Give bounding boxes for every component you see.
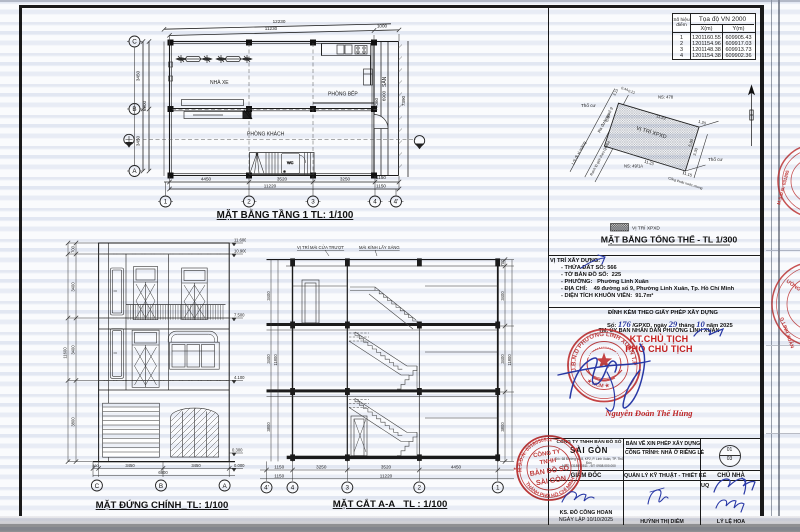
svg-text:★: ★ xyxy=(575,446,579,451)
svg-text:★: ★ xyxy=(513,466,517,471)
svg-text:CÔNG TY: CÔNG TY xyxy=(533,447,561,459)
svg-text:TNHH: TNHH xyxy=(539,458,556,467)
svg-text:ƯỜNG: ƯỜNG xyxy=(785,277,800,293)
